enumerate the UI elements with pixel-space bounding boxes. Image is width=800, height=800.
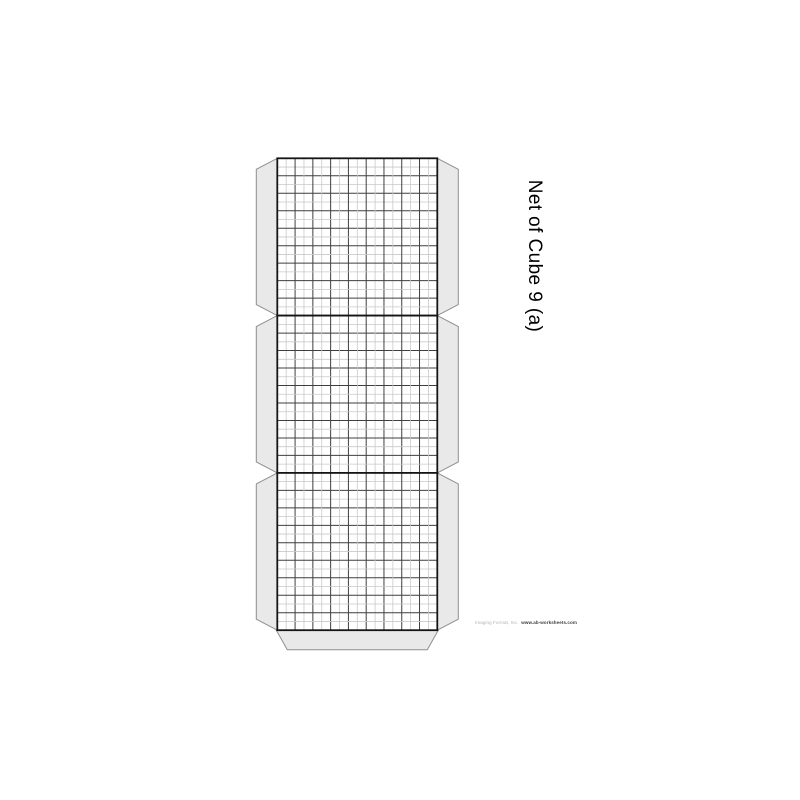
glue-tab-left-1	[256, 158, 277, 315]
glue-tab-right-2	[437, 316, 458, 473]
glue-tab-bottom	[276, 630, 438, 650]
footer-credit: Imaging Format, Inc.www.ab-worksheets.co…	[475, 620, 577, 626]
glue-tab-right-3	[437, 473, 458, 630]
footer-credit-left: Imaging Format, Inc.	[475, 620, 518, 625]
worksheet-page: Net of Cube 9 (a) Imaging Format, Inc.ww…	[0, 0, 800, 800]
glue-tab-left-3	[256, 473, 277, 630]
footer-credit-right: www.ab-worksheets.com	[521, 620, 577, 625]
glue-tab-left-2	[256, 316, 277, 473]
cube-net-diagram	[0, 0, 800, 800]
glue-tab-right-1	[437, 158, 458, 315]
page-title: Net of Cube 9 (a)	[523, 180, 545, 333]
